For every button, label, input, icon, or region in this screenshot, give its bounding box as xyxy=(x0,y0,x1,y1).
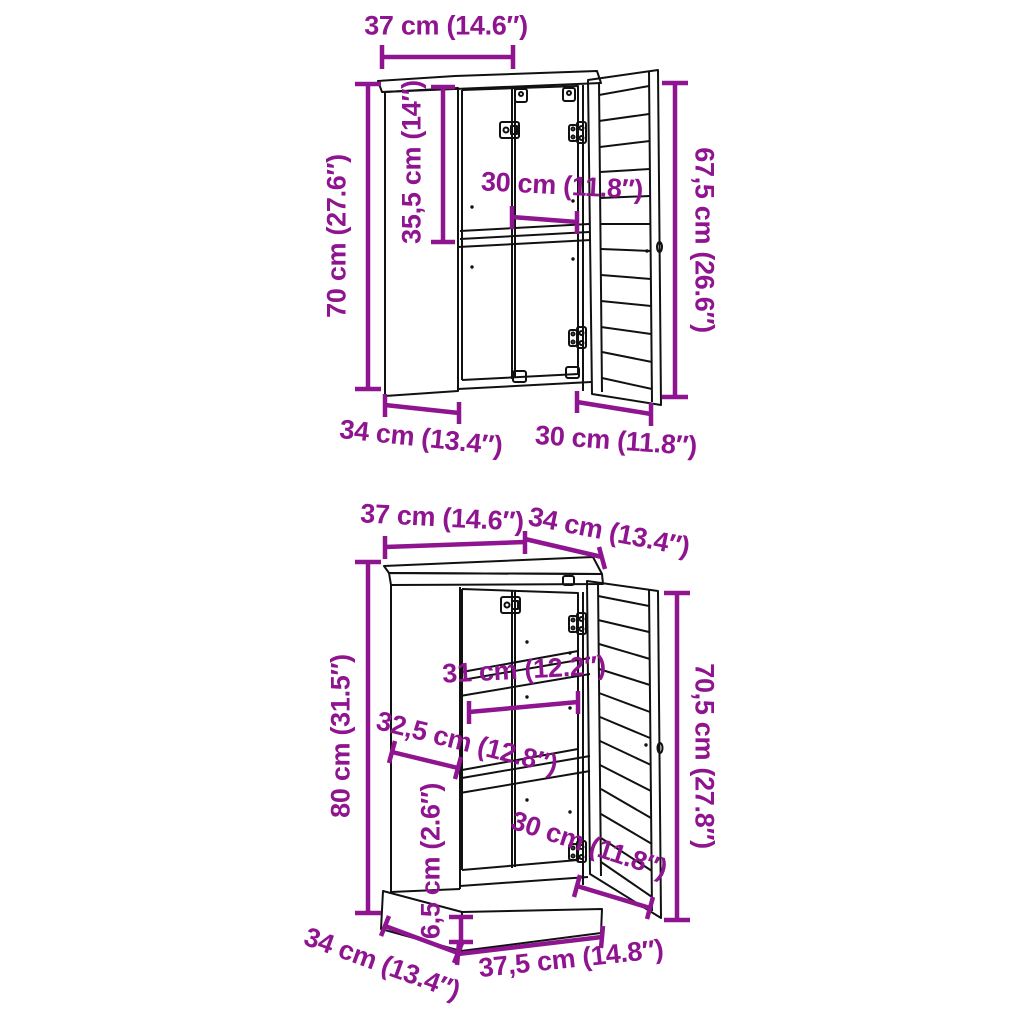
keyhole-plate xyxy=(500,122,519,138)
dim-line-interior-width xyxy=(512,206,577,234)
wall-cabinet-door xyxy=(588,70,662,405)
wall-cabinet-shelf xyxy=(458,224,591,247)
dim-label-floor-height-left: 80 cm (31.5″) xyxy=(326,654,357,818)
dim-line-shelf-width xyxy=(469,691,578,724)
product-dimension-image: 37 cm (14.6″) 70 cm (27.6″) 35,5 cm (14″… xyxy=(0,0,1024,1024)
keyhole-plate-2 xyxy=(501,597,520,613)
dim-line-height-left-2 xyxy=(355,562,381,913)
dim-label-floor-height-right: 70,5 cm (27.8″) xyxy=(689,663,720,849)
dim-line-plinth-height xyxy=(449,917,473,942)
dim-line-height-left xyxy=(355,84,381,389)
dim-label-floor-plinth-height: 6,5 cm (2.6″) xyxy=(416,783,447,939)
dim-line-door-width xyxy=(577,391,651,426)
dim-label-wall-interior-height: 35,5 cm (14″) xyxy=(397,80,428,244)
dim-line-door-width-2 xyxy=(574,875,653,919)
dim-line-height-right xyxy=(662,83,688,397)
door-louver-slats xyxy=(599,86,652,389)
dim-line-interior-height xyxy=(431,87,455,242)
mounting-brackets xyxy=(515,88,575,102)
dim-line-top-depth xyxy=(382,45,513,69)
floor-cabinet-top-board xyxy=(384,557,602,574)
dim-line-height-right-2 xyxy=(664,593,690,920)
dim-label-wall-height-left: 70 cm (27.6″) xyxy=(322,154,353,318)
dim-label-wall-height-right: 67,5 cm (26.6″) xyxy=(689,147,720,333)
dim-label-wall-top-depth: 37 cm (14.6″) xyxy=(364,11,528,42)
